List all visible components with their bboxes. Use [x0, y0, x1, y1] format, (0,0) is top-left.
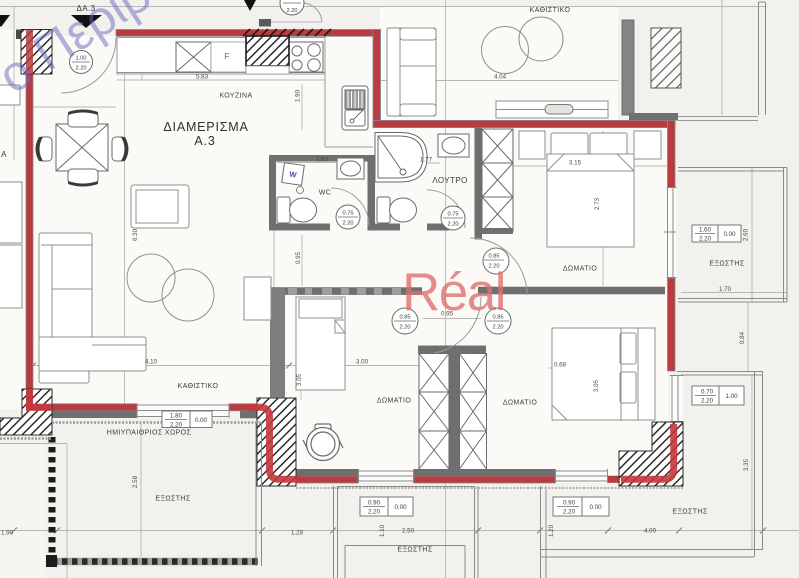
svg-text:6.30: 6.30 [132, 228, 139, 241]
svg-text:ΔΩΜΑΤΙΟ: ΔΩΜΑΤΙΟ [377, 398, 412, 405]
svg-text:ΔΩΜΑΤΙΟ: ΔΩΜΑΤΙΟ [563, 266, 598, 273]
svg-text:0.00: 0.00 [589, 504, 602, 511]
svg-text:ΛΟΥΤΡΟ: ΛΟΥΤΡΟ [432, 176, 467, 185]
svg-text:ΗΜΙΥΠΑΙΘΡΙΟΣ ΧΩΡΟΣ: ΗΜΙΥΠΑΙΘΡΙΟΣ ΧΩΡΟΣ [107, 430, 192, 437]
svg-text:0.84: 0.84 [739, 331, 746, 344]
svg-text:1.70: 1.70 [719, 286, 732, 293]
svg-text:2.60: 2.60 [743, 228, 750, 241]
svg-text:1.77: 1.77 [420, 157, 433, 164]
svg-text:0.70: 0.70 [701, 389, 714, 396]
svg-text:3.35: 3.35 [743, 458, 750, 471]
svg-text:1.90: 1.90 [1, 530, 14, 537]
svg-text:WC: WC [319, 190, 331, 197]
svg-text:2.20: 2.20 [342, 221, 353, 227]
svg-text:4.10: 4.10 [145, 359, 158, 366]
svg-text:Α.3: Α.3 [194, 134, 215, 148]
svg-text:2.20: 2.20 [701, 398, 714, 405]
svg-text:ΕΞΩΣΤΗΣ: ΕΞΩΣΤΗΣ [672, 509, 708, 516]
svg-text:0.90: 0.90 [563, 500, 576, 507]
svg-text:4.04: 4.04 [494, 74, 507, 81]
svg-text:2.73: 2.73 [594, 197, 601, 210]
svg-text:Réal: Réal [402, 263, 505, 322]
svg-text:1.80: 1.80 [170, 413, 183, 420]
svg-text:4.00: 4.00 [644, 528, 657, 535]
svg-text:F: F [224, 51, 230, 61]
svg-text:2.20: 2.20 [368, 509, 381, 516]
svg-text:2.20: 2.20 [170, 422, 183, 429]
svg-text:2.20: 2.20 [699, 236, 712, 243]
svg-text:ΚΑΘΙΣΤΙΚΟ: ΚΑΘΙΣΤΙΚΟ [530, 7, 571, 14]
svg-text:0.00: 0.00 [195, 417, 208, 424]
svg-text:2.20: 2.20 [447, 222, 458, 228]
svg-text:ΕΞΩΣΤΗΣ: ΕΞΩΣΤΗΣ [155, 496, 191, 503]
svg-text:0.00: 0.00 [723, 231, 736, 238]
svg-text:ΚΑΘΙΣΤΙΚΟ: ΚΑΘΙΣΤΙΚΟ [178, 383, 219, 390]
svg-text:1.00: 1.00 [725, 393, 738, 400]
svg-text:2.20: 2.20 [399, 325, 410, 331]
svg-text:1.90: 1.90 [295, 89, 302, 102]
svg-text:1.28: 1.28 [291, 530, 304, 537]
svg-text:2.20: 2.20 [286, 8, 297, 14]
svg-text:2.20: 2.20 [492, 325, 503, 331]
svg-text:2.58: 2.58 [132, 475, 139, 488]
svg-text:ΚΟΥΖΙΝΑ: ΚΟΥΖΙΝΑ [219, 93, 252, 100]
svg-text:0.75: 0.75 [447, 212, 458, 218]
svg-text:3.15: 3.15 [569, 160, 582, 167]
svg-text:ΔΩΜΑΤΙΟ: ΔΩΜΑΤΙΟ [503, 400, 538, 407]
svg-text:ΕΞΩΣΤΗΣ: ΕΞΩΣΤΗΣ [709, 261, 745, 268]
svg-text:2.50: 2.50 [402, 528, 415, 535]
svg-text:0.90: 0.90 [368, 500, 381, 507]
svg-text:1.63: 1.63 [316, 156, 329, 163]
svg-text:Α: Α [1, 150, 7, 159]
svg-text:0.00: 0.00 [394, 504, 407, 511]
svg-text:0.95: 0.95 [295, 251, 302, 264]
svg-text:ΕΞΩΣΤΗΣ: ΕΞΩΣΤΗΣ [397, 547, 433, 554]
svg-text:ΔΙΑΜΕΡΙΣΜΑ: ΔΙΑΜΕΡΙΣΜΑ [163, 120, 248, 134]
svg-text:1.20: 1.20 [548, 524, 555, 537]
svg-text:5.83: 5.83 [196, 74, 209, 81]
svg-text:0.75: 0.75 [342, 211, 353, 217]
svg-text:0.68: 0.68 [554, 362, 567, 369]
svg-text:3.05: 3.05 [296, 373, 303, 386]
svg-text:1.60: 1.60 [699, 227, 712, 234]
svg-text:2.20: 2.20 [563, 509, 576, 516]
svg-text:0.85: 0.85 [488, 254, 499, 260]
svg-text:3.05: 3.05 [593, 379, 600, 392]
svg-text:1.10: 1.10 [379, 524, 386, 537]
svg-text:3.00: 3.00 [356, 359, 369, 366]
